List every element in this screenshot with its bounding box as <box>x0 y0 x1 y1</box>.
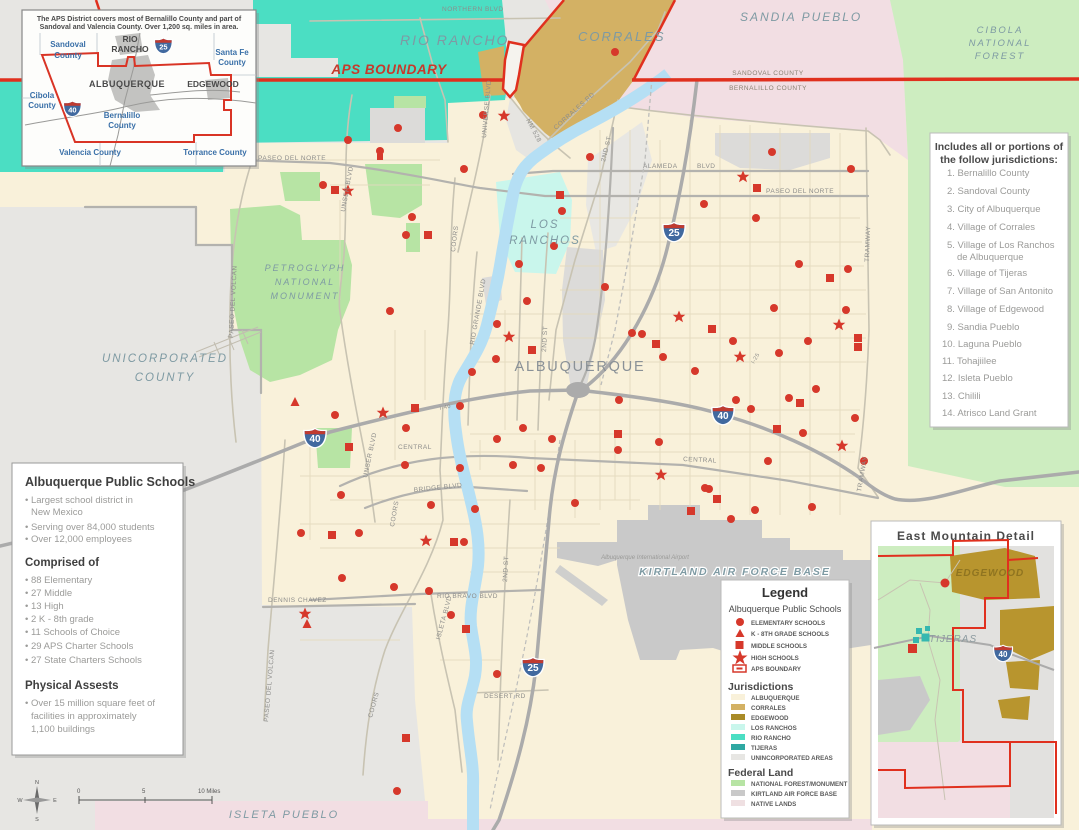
svg-text:RANCHO: RANCHO <box>111 44 149 54</box>
svg-text:K - 8TH GRADE SCHOOLS: K - 8TH GRADE SCHOOLS <box>751 631 829 638</box>
svg-text:FOREST: FOREST <box>975 51 1026 62</box>
svg-text:4. Village of Corrales: 4. Village of Corrales <box>947 222 1035 233</box>
svg-text:ALBUQUERQUE: ALBUQUERQUE <box>89 79 165 89</box>
svg-text:2ND ST: 2ND ST <box>541 326 549 352</box>
svg-text:5. Village of Los Ranchos: 5. Village of Los Ranchos <box>947 240 1055 251</box>
svg-text:10. Laguna Pueblo: 10. Laguna Pueblo <box>942 339 1022 350</box>
svg-text:Albuquerque Public Schools: Albuquerque Public Schools <box>729 604 842 614</box>
svg-text:Includes all or portions of: Includes all or portions of <box>935 141 1064 153</box>
svg-text:APS BOUNDARY: APS BOUNDARY <box>330 62 448 77</box>
svg-text:40: 40 <box>68 106 76 115</box>
svg-text:CENTRAL: CENTRAL <box>398 444 432 451</box>
svg-text:ALAMEDA: ALAMEDA <box>643 163 678 170</box>
svg-text:County: County <box>28 101 56 110</box>
svg-text:BERNALILLO COUNTY: BERNALILLO COUNTY <box>729 85 807 92</box>
svg-text:Legend: Legend <box>762 585 808 600</box>
svg-text:EDGEWOOD: EDGEWOOD <box>751 715 789 722</box>
svg-text:Comprised of: Comprised of <box>25 557 99 569</box>
svg-text:UNINCORPORATED AREAS: UNINCORPORATED AREAS <box>751 755 833 762</box>
svg-text:LOS RANCHOS: LOS RANCHOS <box>751 725 797 732</box>
svg-text:1. Bernalillo County: 1. Bernalillo County <box>947 168 1030 179</box>
svg-text:10 Miles: 10 Miles <box>198 789 220 795</box>
svg-text:Cibola: Cibola <box>30 91 55 100</box>
svg-text:2ND ST: 2ND ST <box>502 556 510 582</box>
svg-text:W: W <box>17 798 23 804</box>
svg-text:COUNTY: COUNTY <box>135 372 196 384</box>
svg-text:11. Tohajiilee: 11. Tohajiilee <box>942 356 997 367</box>
svg-text:NATIONAL: NATIONAL <box>275 277 335 287</box>
svg-text:BLVD: BLVD <box>697 163 716 170</box>
svg-text:ALBUQUERQUE: ALBUQUERQUE <box>515 359 646 375</box>
svg-text:RANCHOS: RANCHOS <box>509 235 581 247</box>
svg-text:KIRTLAND AIR FORCE BASE: KIRTLAND AIR FORCE BASE <box>751 791 837 798</box>
svg-text:• Largest school district in: • Largest school district in <box>25 495 133 506</box>
svg-text:DESERT RD: DESERT RD <box>484 693 526 700</box>
svg-text:APS BOUNDARY: APS BOUNDARY <box>751 666 802 673</box>
svg-text:County: County <box>54 51 82 60</box>
svg-text:MIDDLE SCHOOLS: MIDDLE SCHOOLS <box>751 643 807 650</box>
svg-text:NATIONAL FOREST/MONUMENT: NATIONAL FOREST/MONUMENT <box>751 781 848 788</box>
svg-text:7. Village of San Antonito: 7. Village of San Antonito <box>947 286 1053 297</box>
svg-text:TRAMWAY: TRAMWAY <box>864 226 872 262</box>
svg-text:de Albuquerque: de Albuquerque <box>957 252 1024 263</box>
svg-text:14. Atrisco Land Grant: 14. Atrisco Land Grant <box>942 408 1037 419</box>
svg-text:The APS District covers most o: The APS District covers most of Bernalil… <box>37 16 242 23</box>
svg-text:12. Isleta Pueblo: 12. Isleta Pueblo <box>942 373 1013 384</box>
svg-text:• 27 Middle: • 27 Middle <box>25 588 72 599</box>
svg-text:CIBOLA: CIBOLA <box>977 25 1024 36</box>
svg-text:25: 25 <box>668 228 680 239</box>
svg-text:• 29 APS Charter Schools: • 29 APS Charter Schools <box>25 641 134 652</box>
svg-text:EDGEWOOD: EDGEWOOD <box>956 568 1025 579</box>
svg-text:• 11 Schools of Choice: • 11 Schools of Choice <box>25 627 120 638</box>
svg-text:CORRALES: CORRALES <box>751 705 786 712</box>
svg-text:Santa Fe: Santa Fe <box>215 48 249 57</box>
svg-text:New Mexico: New Mexico <box>31 507 83 518</box>
svg-text:NATIONAL: NATIONAL <box>969 38 1032 49</box>
svg-text:Bernalillo: Bernalillo <box>104 111 141 120</box>
svg-text:• Serving over 84,000 students: • Serving over 84,000 students <box>25 522 155 533</box>
svg-text:8. Village of Edgewood: 8. Village of Edgewood <box>947 304 1044 315</box>
svg-text:40: 40 <box>309 434 321 445</box>
svg-text:• 13 High: • 13 High <box>25 601 64 612</box>
svg-text:NATIVE LANDS: NATIVE LANDS <box>751 801 796 808</box>
svg-text:County: County <box>218 58 246 67</box>
svg-text:Sandoval: Sandoval <box>50 40 86 49</box>
svg-text:ISLETA PUEBLO: ISLETA PUEBLO <box>229 809 339 821</box>
svg-text:NORTHERN BLVD: NORTHERN BLVD <box>442 6 504 13</box>
svg-text:N: N <box>35 780 39 786</box>
svg-text:Valencia County: Valencia County <box>59 148 121 157</box>
svg-text:6. Village of Tijeras: 6. Village of Tijeras <box>947 268 1027 279</box>
svg-text:• Over 15 million square feet: • Over 15 million square feet of <box>25 698 155 709</box>
svg-text:Physical Assests: Physical Assests <box>25 680 119 692</box>
svg-text:25: 25 <box>159 43 167 52</box>
svg-text:Federal Land: Federal Land <box>728 767 793 779</box>
svg-text:• 88 Elementary: • 88 Elementary <box>25 575 92 586</box>
svg-text:LOS: LOS <box>530 219 559 231</box>
svg-text:Albuquerque Public Schools: Albuquerque Public Schools <box>25 475 195 489</box>
svg-text:25: 25 <box>527 663 539 674</box>
svg-text:40: 40 <box>717 411 729 422</box>
svg-text:TIJERAS: TIJERAS <box>929 634 977 645</box>
svg-text:KIRTLAND AIR FORCE BASE: KIRTLAND AIR FORCE BASE <box>639 566 831 578</box>
svg-text:1,100 buildings: 1,100 buildings <box>31 724 95 735</box>
svg-text:ELEMENTARY SCHOOLS: ELEMENTARY SCHOOLS <box>751 620 825 627</box>
svg-text:MONUMENT: MONUMENT <box>271 291 340 301</box>
svg-text:E: E <box>53 798 57 804</box>
svg-text:CORRALES: CORRALES <box>578 29 666 44</box>
svg-text:Sandoval and Valencia County.: Sandoval and Valencia County. Over 1,200… <box>40 24 239 31</box>
svg-text:DENNIS CHAVEZ: DENNIS CHAVEZ <box>268 597 327 604</box>
svg-text:SANDIA PUEBLO: SANDIA PUEBLO <box>740 10 862 24</box>
svg-text:facilities in approximately: facilities in approximately <box>31 711 137 722</box>
svg-text:PASEO DEL NORTE: PASEO DEL NORTE <box>258 155 326 162</box>
svg-text:PASEO DEL NORTE: PASEO DEL NORTE <box>766 188 834 195</box>
svg-text:UNICORPORATED: UNICORPORATED <box>102 353 228 365</box>
svg-text:13. Chilili: 13. Chilili <box>942 391 981 402</box>
svg-text:• Over 12,000 employees: • Over 12,000 employees <box>25 534 132 545</box>
svg-text:SANDOVAL COUNTY: SANDOVAL COUNTY <box>732 70 804 77</box>
svg-text:• 2 K - 8th grade: • 2 K - 8th grade <box>25 614 94 625</box>
svg-text:the follow jurisdictions:: the follow jurisdictions: <box>940 154 1058 166</box>
svg-text:EDGEWOOD: EDGEWOOD <box>187 79 238 89</box>
svg-text:9. Sandia Pueblo: 9. Sandia Pueblo <box>947 322 1019 333</box>
svg-text:3. City of Albuquerque: 3. City of Albuquerque <box>947 204 1040 215</box>
svg-text:ALBUQUERQUE: ALBUQUERQUE <box>751 695 799 702</box>
svg-text:RIO RANCHO: RIO RANCHO <box>751 735 791 742</box>
svg-text:RIO RANCHO: RIO RANCHO <box>400 32 509 48</box>
svg-text:HIGH SCHOOLS: HIGH SCHOOLS <box>751 655 799 662</box>
svg-text:S: S <box>35 817 39 823</box>
svg-text:40: 40 <box>999 650 1008 659</box>
svg-text:Torrance County: Torrance County <box>183 148 247 157</box>
svg-text:County: County <box>108 121 136 130</box>
svg-text:PETROGLYPH: PETROGLYPH <box>265 263 346 273</box>
svg-text:Albuquerque International Airp: Albuquerque International Airport <box>600 555 689 561</box>
svg-text:2. Sandoval County: 2. Sandoval County <box>947 186 1030 197</box>
svg-text:RIO: RIO <box>122 34 138 44</box>
svg-text:Jurisdictions: Jurisdictions <box>728 681 794 693</box>
svg-text:TIJERAS: TIJERAS <box>751 745 777 752</box>
svg-text:• 27 State Charters Schools: • 27 State Charters Schools <box>25 655 142 666</box>
